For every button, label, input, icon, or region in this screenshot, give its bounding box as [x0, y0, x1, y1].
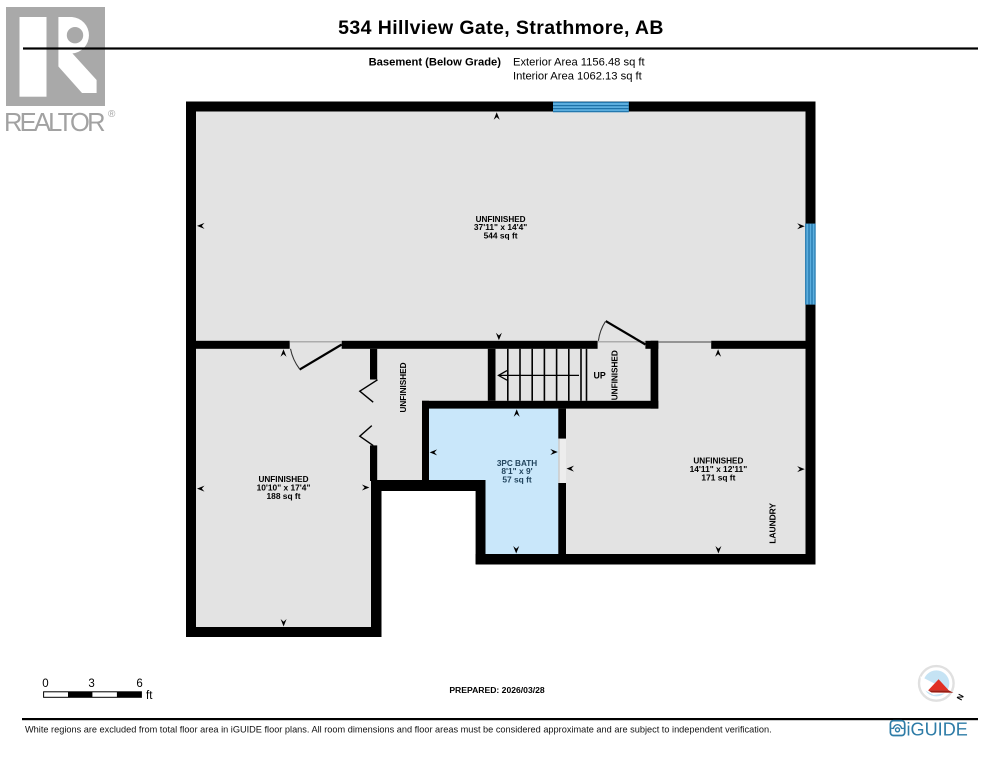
svg-text:UNFINISHED: UNFINISHED [399, 362, 408, 412]
svg-text:®: ® [108, 109, 116, 120]
svg-text:57 sq ft: 57 sq ft [502, 474, 532, 484]
svg-text:Exterior Area 1156.48 sq ft: Exterior Area 1156.48 sq ft [513, 57, 646, 69]
svg-text:N: N [955, 692, 966, 702]
svg-text:ft: ft [146, 690, 153, 702]
svg-text:544 sq ft: 544 sq ft [484, 231, 518, 241]
svg-text:REALTOR: REALTOR [4, 109, 106, 137]
svg-text:Interior Area 1062.13 sq ft: Interior Area 1062.13 sq ft [513, 70, 643, 82]
svg-text:0: 0 [42, 678, 48, 690]
svg-text:534 Hillview Gate, Strathmore,: 534 Hillview Gate, Strathmore, AB [338, 17, 664, 39]
svg-text:3: 3 [88, 678, 94, 690]
svg-text:Basement (Below Grade): Basement (Below Grade) [369, 57, 502, 69]
svg-text:LAUNDRY: LAUNDRY [768, 503, 778, 544]
svg-text:White regions are excluded fro: White regions are excluded from total fl… [25, 725, 772, 735]
svg-text:PREPARED: 2026/03/28: PREPARED: 2026/03/28 [449, 685, 545, 695]
svg-text:6: 6 [136, 678, 142, 690]
svg-text:UNFINISHED: UNFINISHED [611, 350, 620, 400]
svg-text:iGUIDE: iGUIDE [907, 720, 968, 740]
svg-text:188 sq ft: 188 sq ft [267, 491, 301, 501]
svg-text:UP: UP [594, 370, 606, 380]
svg-text:171 sq ft: 171 sq ft [701, 473, 735, 483]
